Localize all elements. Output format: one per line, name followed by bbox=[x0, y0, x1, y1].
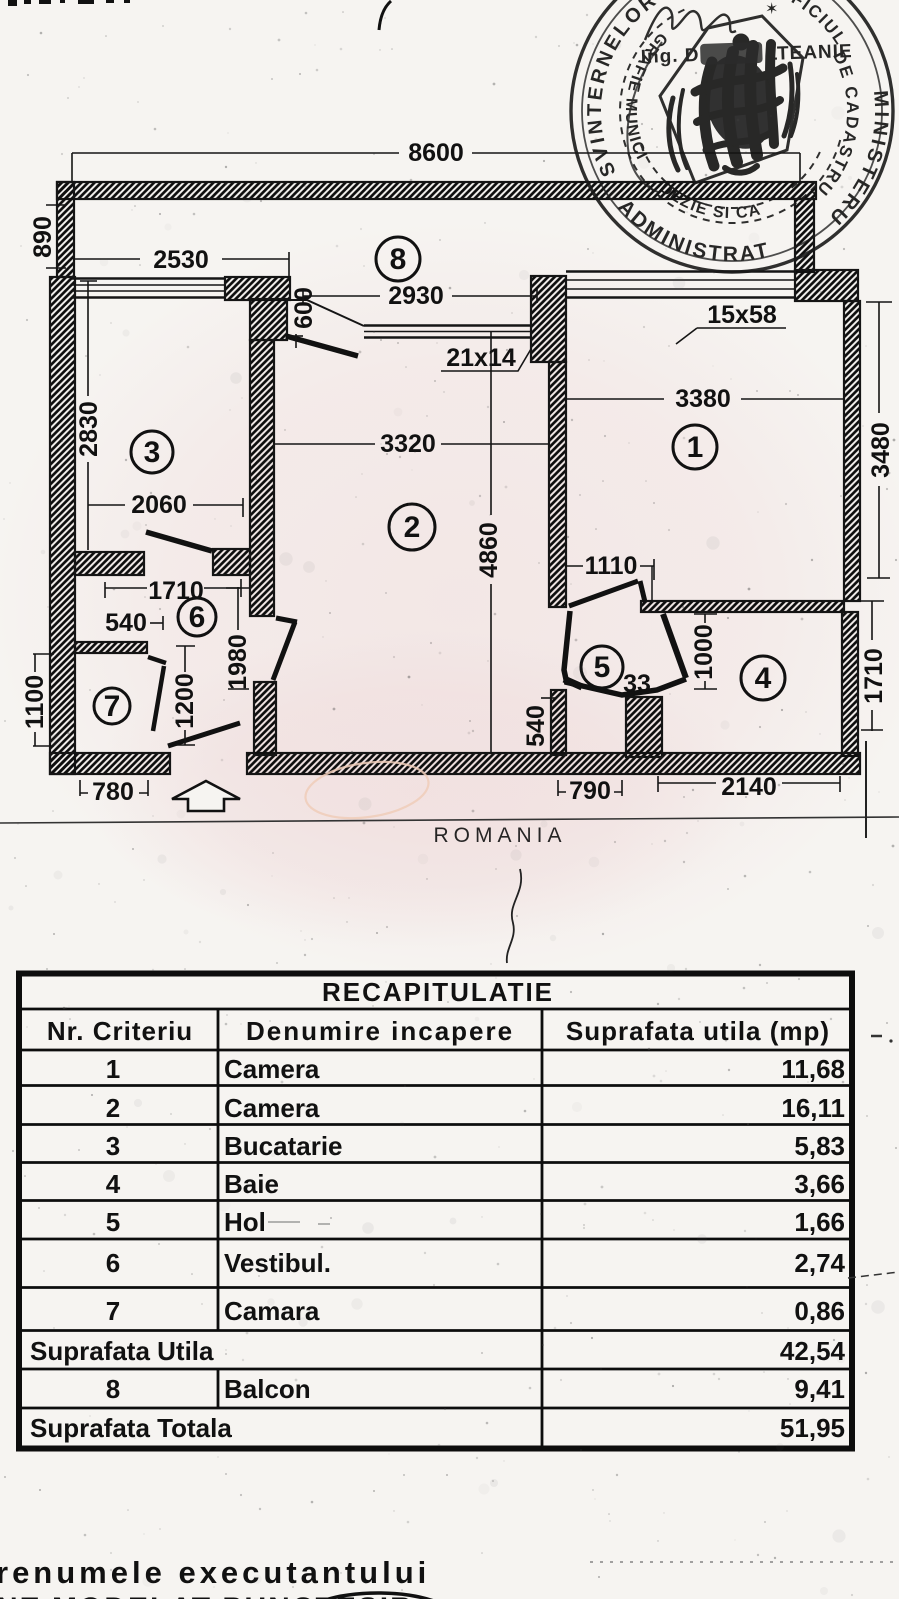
svg-text:8600: 8600 bbox=[408, 139, 464, 167]
svg-text:Hol: Hol bbox=[224, 1207, 266, 1237]
svg-text:Camera: Camera bbox=[224, 1054, 320, 1084]
svg-text:Suprafata Totala: Suprafata Totala bbox=[30, 1413, 232, 1443]
svg-text:3: 3 bbox=[106, 1131, 120, 1161]
svg-text:2930: 2930 bbox=[388, 282, 444, 310]
svg-text:540: 540 bbox=[522, 705, 550, 747]
svg-text:6: 6 bbox=[189, 601, 206, 634]
svg-text:LTEANIE: LTEANIE bbox=[765, 41, 853, 65]
svg-text:1100: 1100 bbox=[21, 675, 49, 729]
svg-text:790: 790 bbox=[569, 777, 611, 805]
svg-text:Nr. Criteriu: Nr. Criteriu bbox=[47, 1016, 193, 1046]
svg-text:3480: 3480 bbox=[867, 422, 895, 478]
svg-text:Balcon: Balcon bbox=[224, 1374, 311, 1404]
svg-text:2140: 2140 bbox=[721, 773, 777, 801]
svg-text:780: 780 bbox=[92, 778, 134, 806]
svg-text:8: 8 bbox=[106, 1374, 120, 1404]
svg-text:890: 890 bbox=[29, 216, 57, 258]
svg-text:2530: 2530 bbox=[153, 246, 209, 274]
svg-text:6: 6 bbox=[106, 1248, 120, 1278]
svg-text:3,66: 3,66 bbox=[794, 1169, 845, 1199]
svg-text:7: 7 bbox=[106, 1296, 120, 1326]
svg-text:✶: ✶ bbox=[765, 1, 778, 18]
svg-text:5: 5 bbox=[106, 1207, 120, 1237]
svg-text:Vestibul.: Vestibul. bbox=[224, 1248, 331, 1278]
svg-text:4: 4 bbox=[755, 662, 772, 695]
svg-text:1000: 1000 bbox=[690, 624, 718, 680]
svg-text:Suprafata Utila: Suprafata Utila bbox=[30, 1336, 214, 1366]
svg-text:11,68: 11,68 bbox=[781, 1054, 845, 1084]
svg-text:3: 3 bbox=[144, 436, 161, 469]
svg-text:540: 540 bbox=[105, 609, 147, 637]
svg-text:5,83: 5,83 bbox=[794, 1131, 845, 1161]
svg-text:1: 1 bbox=[687, 431, 704, 464]
svg-text:ROMANIA: ROMANIA bbox=[433, 824, 566, 847]
svg-text:42,54: 42,54 bbox=[780, 1336, 846, 1366]
svg-text:7: 7 bbox=[104, 690, 121, 723]
svg-text:0,86: 0,86 bbox=[794, 1296, 845, 1326]
svg-text:Camera: Camera bbox=[224, 1093, 320, 1123]
svg-text:9,41: 9,41 bbox=[794, 1374, 845, 1404]
svg-text:RECAPITULATIE: RECAPITULATIE bbox=[322, 977, 554, 1007]
svg-text:16,11: 16,11 bbox=[781, 1093, 845, 1123]
svg-text:Suprafata utila (mp): Suprafata utila (mp) bbox=[566, 1016, 830, 1046]
svg-text:1,66: 1,66 bbox=[794, 1207, 845, 1237]
svg-text:3320: 3320 bbox=[380, 430, 436, 458]
svg-text:2,74: 2,74 bbox=[794, 1248, 845, 1278]
svg-text:1980: 1980 bbox=[224, 634, 252, 690]
svg-text:2060: 2060 bbox=[131, 491, 187, 519]
svg-text:21x14: 21x14 bbox=[446, 344, 516, 372]
svg-text:1: 1 bbox=[106, 1054, 120, 1084]
svg-text:2: 2 bbox=[106, 1093, 120, 1123]
svg-text:8: 8 bbox=[390, 243, 407, 276]
svg-text:2830: 2830 bbox=[75, 401, 103, 457]
svg-text:4860: 4860 bbox=[475, 522, 503, 578]
svg-text:Baie: Baie bbox=[224, 1169, 279, 1199]
svg-text:51,95: 51,95 bbox=[780, 1413, 845, 1443]
svg-text:600: 600 bbox=[290, 287, 318, 329]
svg-text:1110: 1110 bbox=[585, 552, 638, 580]
svg-text:15x58: 15x58 bbox=[707, 301, 777, 329]
svg-text:4: 4 bbox=[106, 1169, 121, 1199]
svg-text:Ing. D: Ing. D bbox=[640, 45, 699, 68]
svg-text:2: 2 bbox=[404, 511, 421, 544]
svg-text:33: 33 bbox=[623, 670, 651, 698]
svg-text:1200: 1200 bbox=[171, 673, 199, 729]
svg-text:5: 5 bbox=[594, 651, 611, 684]
svg-text:renumele executantului: renumele executantului bbox=[0, 1555, 430, 1590]
svg-text:1710: 1710 bbox=[860, 648, 888, 704]
svg-text:Bucatarie: Bucatarie bbox=[224, 1131, 343, 1161]
svg-text:3380: 3380 bbox=[675, 385, 731, 413]
